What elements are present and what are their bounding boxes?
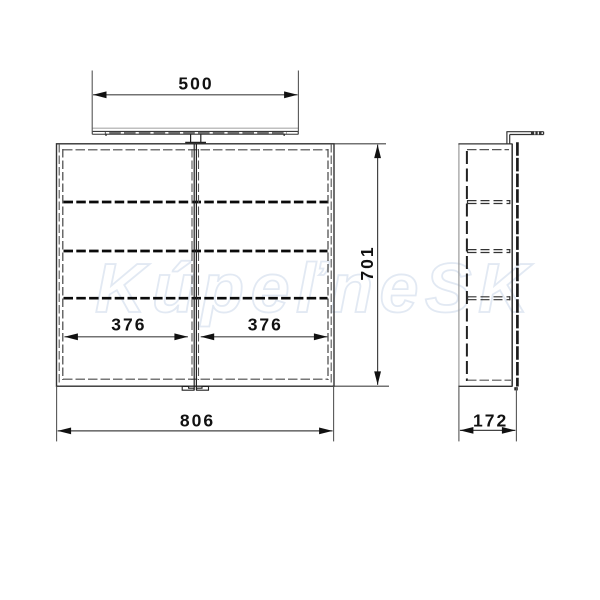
svg-text:500: 500 xyxy=(178,74,213,94)
svg-text:701: 701 xyxy=(357,245,377,280)
svg-text:806: 806 xyxy=(180,410,215,430)
svg-text:376: 376 xyxy=(248,315,283,335)
svg-text:376: 376 xyxy=(111,315,146,335)
svg-text:172: 172 xyxy=(473,410,508,430)
